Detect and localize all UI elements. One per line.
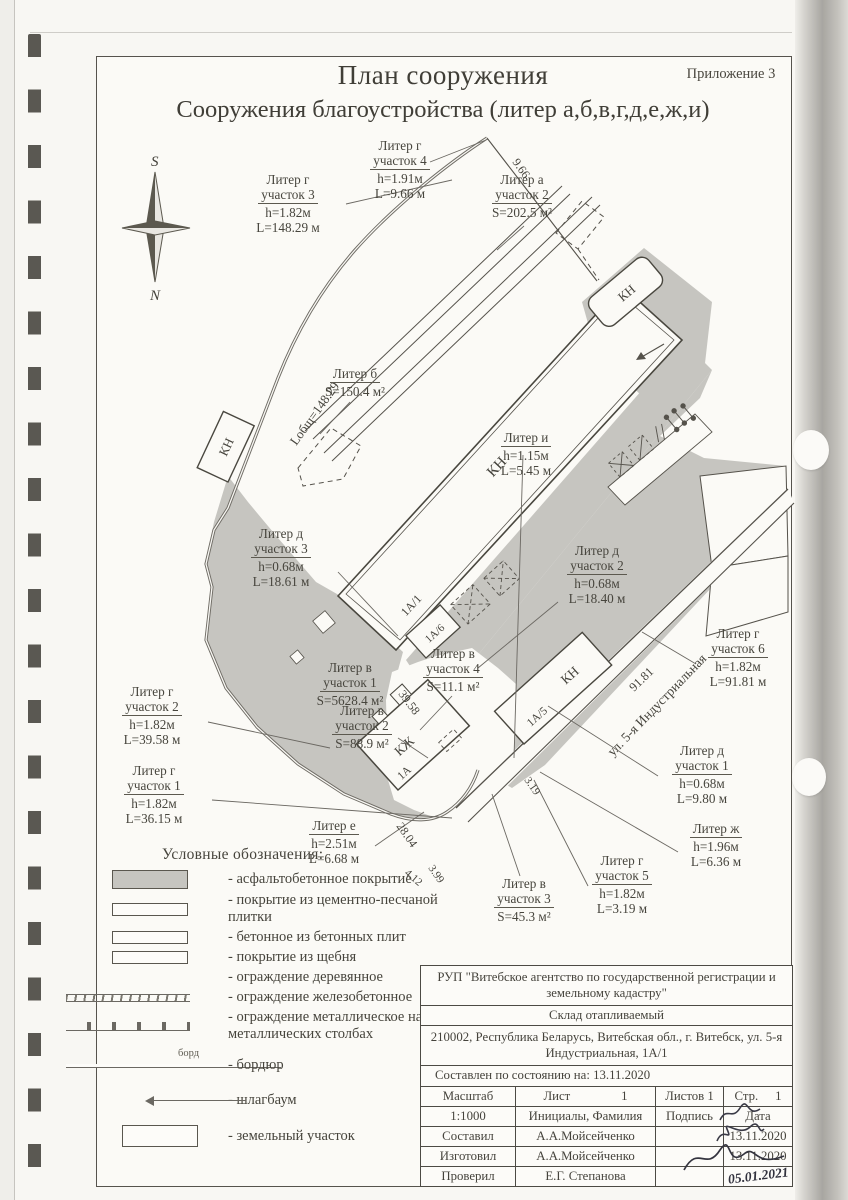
asphalt-swatch-icon bbox=[112, 870, 188, 889]
dim-3-19: 3.19 bbox=[522, 775, 543, 798]
legend-item-concrete-slabs: - бетонное из бетонных плит bbox=[112, 929, 482, 946]
as-of-date-note: Составлен по состоянию на: 13.11.2020 bbox=[421, 1066, 792, 1087]
produced-date: 13.11.2020 bbox=[724, 1147, 792, 1167]
organization-name: РУП "Витебское агентство по государствен… bbox=[421, 966, 792, 1006]
checked-person: Е.Г. Степанова bbox=[516, 1167, 656, 1186]
metal-fence-line-icon bbox=[66, 1022, 190, 1031]
page-top-edge bbox=[30, 32, 792, 33]
compass-north-label: N bbox=[149, 288, 161, 304]
compass-needle-horizontal-fill bbox=[122, 221, 190, 228]
plan-label-v1: Литер вучасток 1 S=5628.4 м² bbox=[298, 660, 402, 708]
checked-role: Проверил bbox=[421, 1167, 516, 1186]
binder-hole-bottom bbox=[792, 758, 826, 796]
compiled-signature-cell bbox=[656, 1127, 724, 1147]
page-left-edge bbox=[14, 0, 15, 1200]
page-header: Стр. 1 bbox=[724, 1087, 792, 1107]
title-block: РУП "Витебское агентство по государствен… bbox=[420, 965, 793, 1187]
plan-label-d2: Литер дучасток 2 h=0.68мL=18.40 м bbox=[542, 543, 652, 606]
checked-date: 05.01.2021 bbox=[724, 1167, 792, 1186]
compiled-role: Составил bbox=[421, 1127, 516, 1147]
object-address: 210002, Республика Беларусь, Витебская о… bbox=[421, 1026, 792, 1066]
plan-label-g3: Литер гучасток 3 h=1.82мL=148.29 м bbox=[232, 172, 344, 235]
binder-perforation-strip bbox=[28, 34, 41, 1186]
scale-header: Масштаб bbox=[421, 1087, 516, 1107]
legend-item-cement-tile: - покрытие из цементно-песчаной плитки bbox=[112, 892, 482, 926]
compass-south-label: S bbox=[151, 154, 159, 170]
plan-label-zh: Литер ж h=1.96мL=6.36 м bbox=[668, 821, 764, 869]
checked-signature-cell bbox=[656, 1167, 724, 1186]
plan-label-g4: Литер гучасток 4 h=1.91мL=9.66 м bbox=[348, 138, 452, 201]
plan-label-v3: Литер вучасток 3 S=45.3 м² bbox=[478, 876, 570, 924]
plan-label-v4: Литер вучасток 4 S=11.1 м² bbox=[404, 646, 502, 694]
plan-label-v2: Литер вучасток 2 S=88.9 м² bbox=[310, 703, 414, 751]
plan-label-d1: Литер дучасток 1 h=0.68мL=9.80 м bbox=[652, 743, 752, 806]
scale-value: 1:1000 bbox=[421, 1107, 516, 1127]
gravel-swatch-icon bbox=[112, 951, 188, 964]
plan-label-a2: Литер аучасток 2 S=202.5 м² bbox=[468, 172, 576, 220]
legend-item-asphalt: - асфальтобетонное покрытие bbox=[112, 870, 482, 889]
concrete-fence-line-icon bbox=[66, 994, 190, 1002]
liter-b-dashed-contour bbox=[298, 428, 361, 486]
plan-label-g5: Литер гучасток 5 h=1.82мL=3.19 м bbox=[572, 853, 672, 916]
compiled-person: А.А.Мойсейченко bbox=[516, 1127, 656, 1147]
building-kn-left: КН bbox=[197, 411, 254, 482]
plan-label-g1: Литер гучасток 1 h=1.82мL=36.15 м bbox=[100, 763, 208, 826]
page-title: План сооружения bbox=[96, 60, 790, 91]
compiled-date: 13.11.2020 bbox=[724, 1127, 792, 1147]
handwritten-date: 05.01.2021 bbox=[727, 1167, 789, 1186]
sheets-header: Листов 1 bbox=[656, 1087, 724, 1107]
page-subtitle: Сооружения благоустройства (литер а,б,в,… bbox=[96, 96, 790, 124]
plan-label-b: Литер б S=150.4 м² bbox=[300, 366, 410, 399]
produced-person: А.А.Мойсейченко bbox=[516, 1147, 656, 1167]
sheet-header: Лист 1 bbox=[516, 1087, 656, 1107]
legend-item-gravel: - покрытие из щебня bbox=[112, 949, 482, 966]
cement-tile-swatch-icon bbox=[112, 903, 188, 916]
plan-label-g2: Литер гучасток 2 h=1.82мL=39.58 м bbox=[96, 684, 208, 747]
legend-title: Условные обозначения: bbox=[162, 846, 482, 864]
produced-signature-cell bbox=[656, 1147, 724, 1167]
scan-shadow-band bbox=[795, 0, 848, 1200]
plan-label-d3: Литер дучасток 3 h=0.68мL=18.61 м bbox=[226, 526, 336, 589]
date-header: Дата bbox=[724, 1107, 792, 1127]
concrete-slabs-swatch-icon bbox=[112, 931, 188, 944]
compass-rose: S N bbox=[100, 148, 210, 308]
signature-header: Подпись bbox=[656, 1107, 724, 1127]
scanned-plan-page: { "page": { "appendix": "Приложение 3", … bbox=[0, 0, 848, 1200]
plan-label-g6: Литер гучасток 6 h=1.82мL=91.81 м bbox=[688, 626, 788, 689]
binder-hole-top bbox=[793, 430, 829, 470]
initials-header: Инициалы, Фамилия bbox=[516, 1107, 656, 1127]
barrier-arrow-icon bbox=[138, 1095, 246, 1107]
object-name: Склад отапливаемый bbox=[421, 1006, 792, 1026]
plan-label-i: Литер и h=1.15мL=5.45 м bbox=[476, 430, 576, 478]
produced-role: Изготовил bbox=[421, 1147, 516, 1167]
land-parcel-swatch-icon bbox=[122, 1125, 198, 1147]
curb-mark-label: борд bbox=[178, 1048, 199, 1059]
